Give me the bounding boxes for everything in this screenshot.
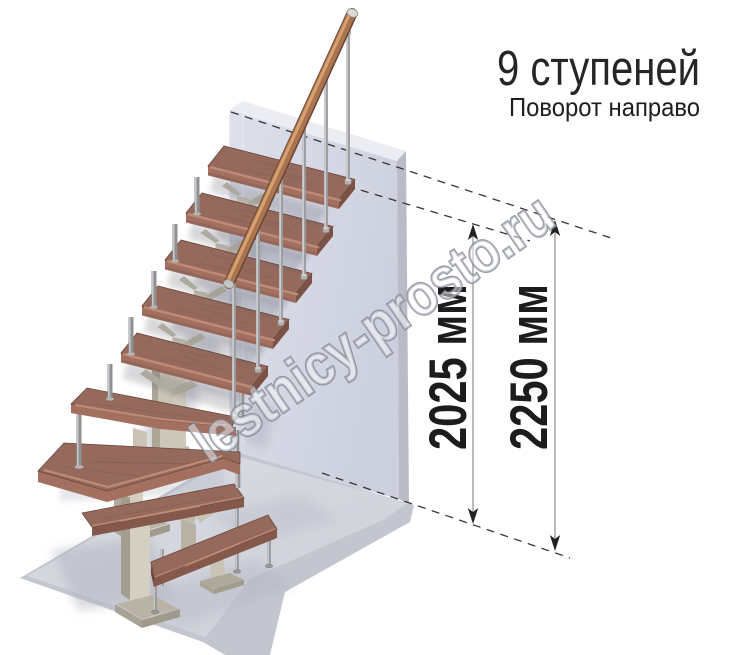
svg-text:Поворот направо: Поворот направо	[509, 92, 700, 122]
svg-text:2250 мм: 2250 мм	[500, 284, 559, 450]
svg-text:9 ступеней: 9 ступеней	[497, 42, 700, 96]
